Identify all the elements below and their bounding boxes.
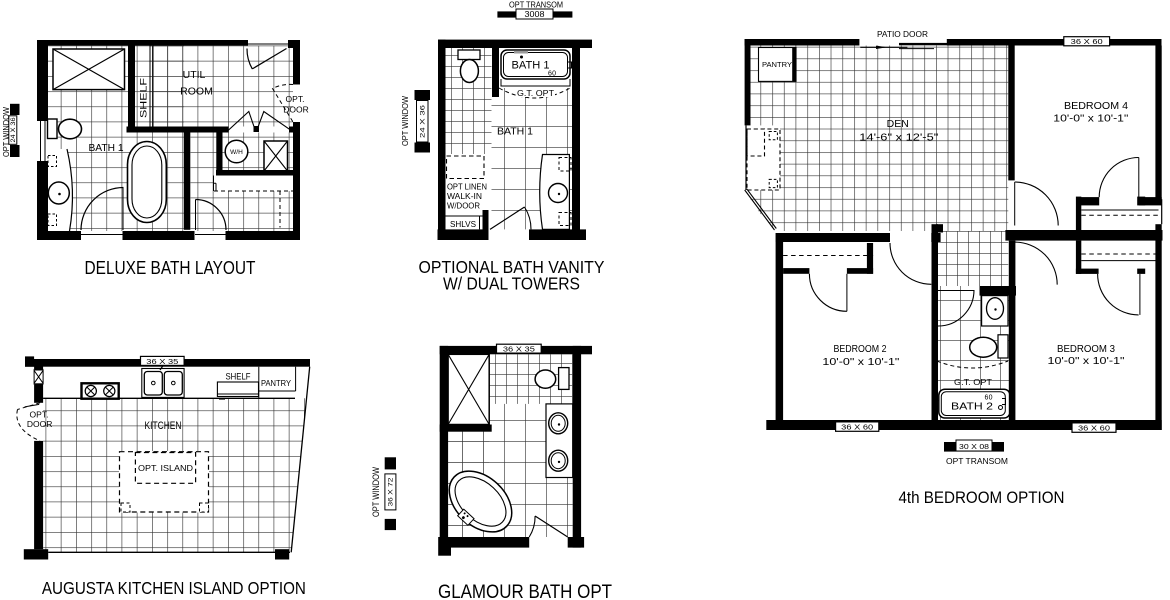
svg-text:W/DOOR: W/DOOR [447,202,480,211]
svg-text:BATH 2: BATH 2 [951,402,994,413]
svg-text:BATH 1: BATH 1 [512,60,550,72]
svg-text:UTIL: UTIL [183,69,206,81]
svg-text:WALK-IN: WALK-IN [447,192,482,201]
svg-text:10'-0" x 10'-1": 10'-0" x 10'-1" [1048,355,1125,367]
svg-text:SHELF: SHELF [226,372,251,382]
svg-text:36 X 35: 36 X 35 [503,344,535,353]
svg-text:SHLVS: SHLVS [450,220,476,229]
svg-text:36 X 60: 36 X 60 [1078,424,1110,433]
svg-text:24 X 36: 24 X 36 [10,117,17,142]
svg-text:60: 60 [985,395,993,402]
svg-text:BATH 1: BATH 1 [89,142,124,154]
svg-text:PANTRY: PANTRY [762,60,792,69]
svg-text:DOOR: DOOR [27,419,53,429]
svg-text:14'-6" x 12'-5": 14'-6" x 12'-5" [859,132,938,144]
svg-text:W/H: W/H [230,149,243,156]
svg-text:36 X 35: 36 X 35 [146,357,178,366]
svg-text:DOOR: DOOR [283,105,309,115]
svg-text:OPT WINDOW: OPT WINDOW [371,467,381,517]
svg-text:OPT. ISLAND: OPT. ISLAND [138,463,193,473]
svg-text:OPT.: OPT. [30,410,49,420]
svg-text:30 X 08: 30 X 08 [959,442,989,451]
svg-text:SHELF: SHELF [139,78,150,118]
svg-text:36 X 60: 36 X 60 [841,423,873,432]
svg-text:60: 60 [548,71,556,78]
svg-text:36 X 60: 36 X 60 [1071,37,1103,46]
svg-text:BEDROOM 2: BEDROOM 2 [834,343,887,355]
svg-text:BEDROOM 4: BEDROOM 4 [1064,100,1128,112]
svg-text:4th BEDROOM OPTION: 4th BEDROOM OPTION [899,488,1065,507]
svg-text:GLAMOUR BATH OPT: GLAMOUR BATH OPT [438,582,612,600]
svg-text:BATH 1: BATH 1 [497,126,533,138]
svg-text:24 X 36: 24 X 36 [420,104,427,138]
svg-text:3008: 3008 [525,10,546,19]
svg-text:OPT WINDOW: OPT WINDOW [401,96,410,146]
svg-text:ROOM: ROOM [180,86,213,98]
svg-text:10'-0" x 10'-1": 10'-0" x 10'-1" [1053,113,1128,125]
svg-text:OPT.: OPT. [286,94,305,104]
svg-text:BEDROOM 3: BEDROOM 3 [1057,343,1115,355]
svg-text:KITCHEN: KITCHEN [145,420,182,432]
svg-text:PATIO DOOR: PATIO DOOR [877,30,928,39]
svg-text:OPT LINEN: OPT LINEN [447,183,487,192]
svg-text:10'-0" x 10'-1": 10'-0" x 10'-1" [822,356,899,368]
svg-text:OPT TRANSOM: OPT TRANSOM [509,0,563,10]
svg-text:DEN: DEN [887,118,909,130]
svg-text:G.T. OPT: G.T. OPT [517,88,554,98]
svg-text:G.T. OPT: G.T. OPT [954,378,992,387]
svg-text:W/ DUAL TOWERS: W/ DUAL TOWERS [443,274,580,294]
svg-text:36 X 72: 36 X 72 [388,477,395,506]
svg-text:DELUXE BATH LAYOUT: DELUXE BATH LAYOUT [85,258,256,278]
svg-text:AUGUSTA KITCHEN ISLAND OPTION: AUGUSTA KITCHEN ISLAND OPTION [42,578,306,598]
svg-text:OPT TRANSOM: OPT TRANSOM [946,456,1008,466]
svg-text:PANTRY: PANTRY [261,378,291,388]
